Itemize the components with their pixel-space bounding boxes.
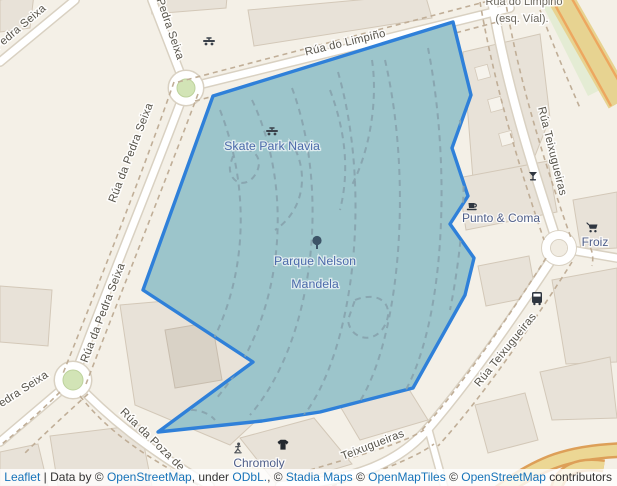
poi-label-parque-line2: Mandela — [291, 277, 339, 291]
openmaptiles-link[interactable]: OpenMapTiles — [368, 470, 446, 484]
poi-label-froiz: Froiz — [582, 235, 609, 249]
map-viewport[interactable]: Rúa do Limpiño Rúa da Pedra Seixa Rúa da… — [0, 0, 617, 486]
stadia-link[interactable]: Stadia Maps — [286, 470, 353, 484]
roundabout-green — [63, 370, 83, 390]
addr-label-limpino-line1: Rúa do Limpiño — [485, 0, 562, 8]
attribution-text: | Data by © — [40, 470, 107, 484]
attribution-text: contributors — [546, 470, 612, 484]
map-canvas[interactable]: Rúa do Limpiño Rúa da Pedra Seixa Rúa da… — [0, 0, 617, 486]
odbl-link[interactable]: ODbL. — [232, 470, 267, 484]
poi-label-parque-line1: Parque Nelson — [274, 254, 356, 268]
roundabout-center — [551, 240, 567, 256]
poi-label-chromoly: Chromoly — [233, 456, 284, 470]
osm-contributors-link[interactable]: OpenStreetMap — [461, 470, 546, 484]
attribution-text: , © — [267, 470, 286, 484]
courtyard — [475, 64, 491, 80]
poi-label-punto-coma: Punto & Coma — [462, 211, 540, 225]
attribution-bar: Leaflet | Data by © OpenStreetMap, under… — [0, 469, 617, 486]
attribution-text: © — [446, 470, 462, 484]
osm-link[interactable]: OpenStreetMap — [107, 470, 192, 484]
attribution-text: , under — [192, 470, 233, 484]
poi-label-skate-park: Skate Park Navia — [224, 139, 320, 153]
attribution-text: © — [353, 470, 369, 484]
courtyard — [499, 130, 515, 146]
leaflet-link[interactable]: Leaflet — [4, 470, 40, 484]
building — [0, 286, 52, 346]
addr-label-limpino-line2: (esq. Víal). — [495, 13, 548, 25]
